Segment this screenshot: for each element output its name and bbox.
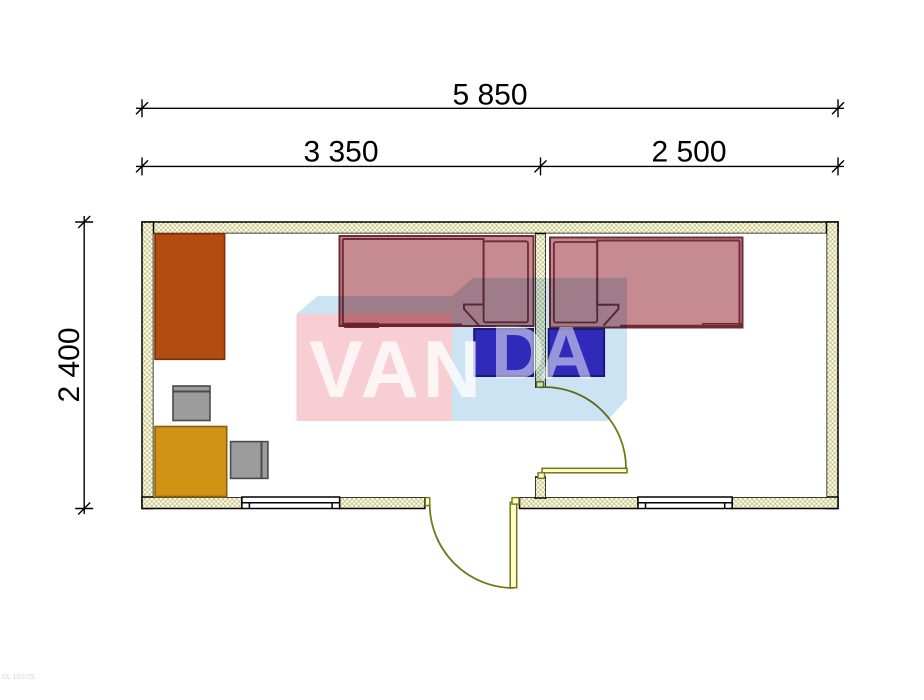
- svg-text:DL 102/2S: DL 102/2S: [2, 674, 35, 681]
- svg-text:VAN: VAN: [309, 325, 485, 415]
- svg-text:5 850: 5 850: [452, 79, 527, 112]
- svg-text:DA: DA: [491, 311, 592, 395]
- svg-text:3 350: 3 350: [303, 136, 378, 169]
- svg-text:2 400: 2 400: [53, 327, 86, 402]
- svg-text:2 500: 2 500: [651, 136, 726, 169]
